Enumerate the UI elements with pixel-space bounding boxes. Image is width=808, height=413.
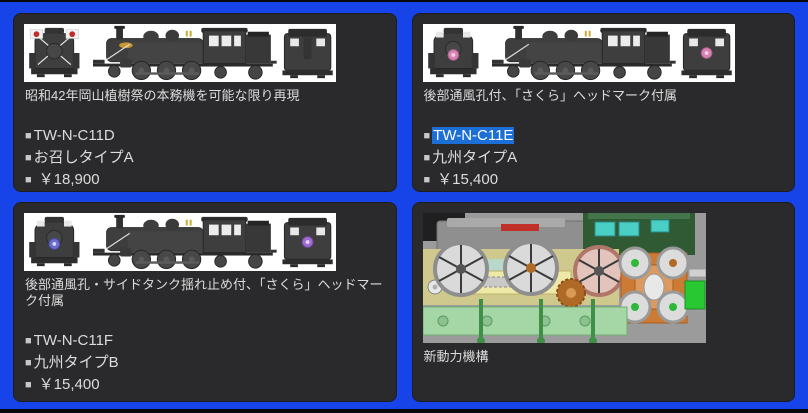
product-caption: 後部通風孔・サイドタンク揺れ止め付、「さくら」ヘッドマーク付属 (25, 277, 386, 309)
product-caption: 後部通風孔付、「さくら」ヘッドマーク付属 (424, 88, 785, 104)
square-bullet-icon: ■ (424, 174, 431, 186)
locomotive-illustration-sakura-b (24, 213, 336, 271)
product-variant: 九州タイプA (432, 149, 517, 166)
product-code-line: ■TW-N-C11D (25, 125, 386, 147)
product-card-tw-n-c11e: 後部通風孔付、「さくら」ヘッドマーク付属 ■TW-N-C11E ■九州タイプA … (412, 13, 796, 192)
product-price-line: ■￥18,900 (25, 169, 386, 191)
feature-image (423, 213, 706, 343)
square-bullet-icon: ■ (424, 130, 431, 142)
product-variant-line: ■九州タイプA (424, 147, 785, 169)
page-background: 昭和42年岡山植樹祭の本務機を可能な限り再現 ■TW-N-C11D ■お召しタイ… (0, 0, 808, 413)
locomotive-illustration-sakura-a (423, 24, 735, 82)
product-code: TW-N-C11F (34, 332, 113, 349)
product-price-line: ■￥15,400 (424, 169, 785, 191)
product-caption: 昭和42年岡山植樹祭の本務機を可能な限り再現 (25, 88, 386, 104)
square-bullet-icon: ■ (25, 174, 32, 186)
locomotive-illustration-imperial (24, 24, 336, 82)
square-bullet-icon: ■ (25, 335, 32, 347)
product-grid: 昭和42年岡山植樹祭の本務機を可能な限り再現 ■TW-N-C11D ■お召しタイ… (13, 13, 795, 402)
square-bullet-icon: ■ (25, 130, 32, 142)
product-spec-list: ■TW-N-C11F ■九州タイプB ■￥15,400 (25, 330, 386, 396)
product-image (24, 213, 336, 271)
product-image (423, 24, 735, 82)
product-spec-list: ■TW-N-C11D ■お召しタイプA ■￥18,900 (25, 125, 386, 191)
product-variant: 九州タイプB (34, 354, 119, 371)
square-bullet-icon: ■ (25, 379, 32, 391)
product-code: TW-N-C11D (34, 127, 115, 144)
square-bullet-icon: ■ (25, 357, 32, 369)
selected-product-code: TW-N-C11E (432, 127, 514, 144)
product-image (24, 24, 336, 82)
square-bullet-icon: ■ (424, 152, 431, 164)
product-price: ￥18,900 (39, 171, 100, 188)
bottom-edge-bar (0, 409, 808, 413)
product-variant-line: ■お召しタイプA (25, 147, 386, 169)
feature-card-drive-mechanism: 新動力機構 (412, 202, 796, 402)
feature-caption: 新動力機構 (424, 349, 785, 365)
square-bullet-icon: ■ (25, 152, 32, 164)
product-spec-list: ■TW-N-C11E ■九州タイプA ■￥15,400 (424, 125, 785, 191)
product-card-tw-n-c11f: 後部通風孔・サイドタンク揺れ止め付、「さくら」ヘッドマーク付属 ■TW-N-C1… (13, 202, 397, 402)
product-card-tw-n-c11d: 昭和42年岡山植樹祭の本務機を可能な限り再現 ■TW-N-C11D ■お召しタイ… (13, 13, 397, 192)
drive-mechanism-cad-image (423, 213, 706, 343)
product-price: ￥15,400 (437, 171, 498, 188)
product-code-line: ■TW-N-C11E (424, 125, 785, 147)
product-variant-line: ■九州タイプB (25, 352, 386, 374)
product-price-line: ■￥15,400 (25, 374, 386, 396)
product-code-line: ■TW-N-C11F (25, 330, 386, 352)
product-variant: お召しタイプA (34, 149, 134, 166)
product-price: ￥15,400 (39, 376, 100, 393)
